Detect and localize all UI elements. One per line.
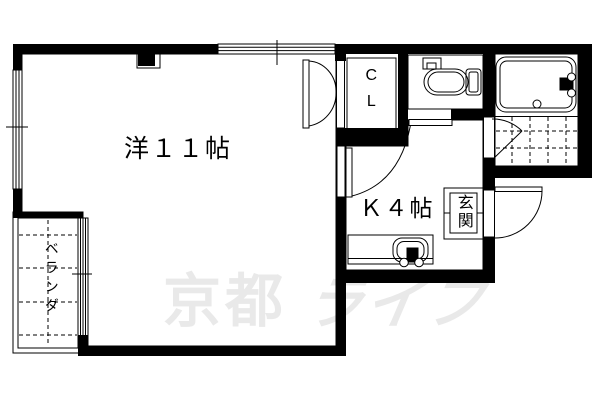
wall-column [138, 44, 155, 66]
wall-top-left [13, 44, 218, 54]
wall-kitchen-right-lower [483, 237, 495, 283]
toilet-area [408, 55, 483, 109]
wall-toilet-bottom [451, 109, 483, 120]
wall-left-lower [13, 189, 22, 212]
watermark-kanji: 京都 [163, 269, 287, 334]
wall-veranda-post [78, 335, 88, 347]
wall-bottom-main [78, 346, 346, 356]
wall-toilet-left [398, 54, 408, 146]
wall-bath-corner [483, 158, 495, 166]
main-room-label: 洋１１帖 [103, 136, 253, 162]
closet-label: CL [362, 67, 379, 119]
wall-bath-right [578, 44, 592, 178]
wall-veranda-top [13, 212, 83, 218]
bathroom-area [495, 54, 578, 166]
wall-top-right [335, 44, 592, 54]
floorplan-canvas: 京都 ライフ [0, 0, 600, 400]
wall-bath-bottom [483, 166, 592, 178]
wall-closet-bottom [336, 128, 408, 146]
toilet-door [409, 120, 452, 126]
entrance-label: 玄関 [454, 194, 471, 230]
wall-left-upper [13, 44, 22, 70]
entrance-door [484, 187, 543, 238]
floorplan-screenshot: 京都 ライフ [0, 0, 600, 400]
wall-toilet-bath [483, 44, 495, 117]
wall-kitchen-bottom [336, 270, 495, 283]
wall-kitchen-right-upper [483, 178, 495, 190]
kitchen-label: Ｋ４帖 [347, 196, 447, 220]
veranda-label: ベランダ [44, 241, 59, 317]
wall-closet-left-stub [335, 54, 346, 61]
wall-main-kitchen [336, 197, 346, 270]
